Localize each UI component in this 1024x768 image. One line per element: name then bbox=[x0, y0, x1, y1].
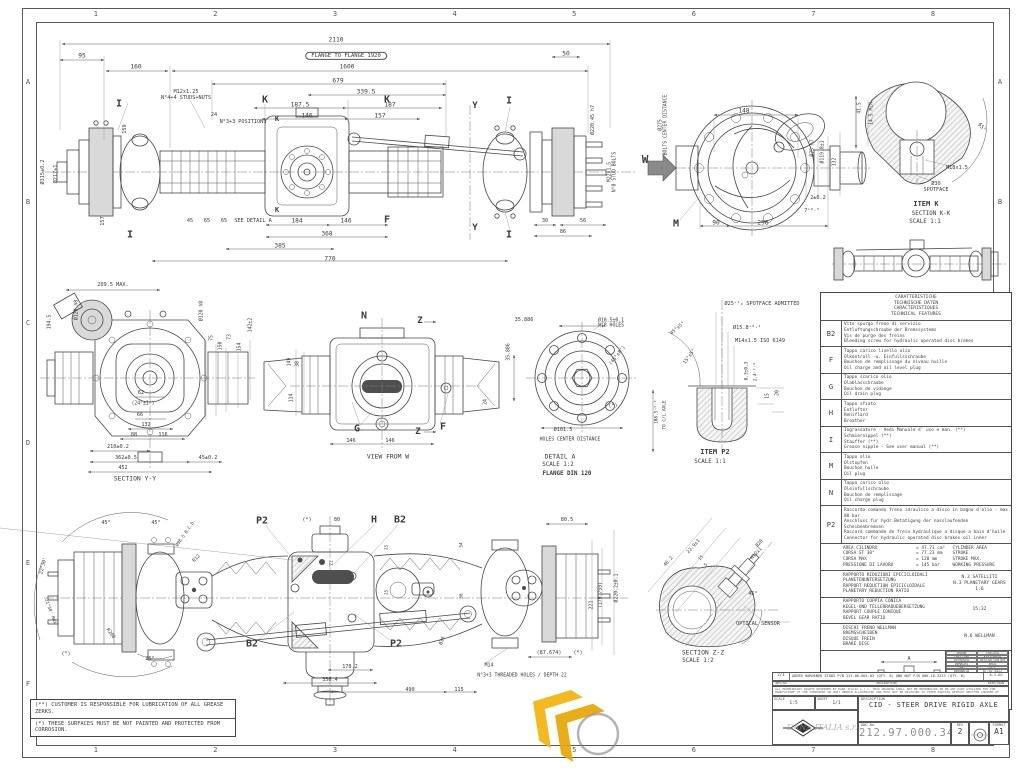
dim-label: I bbox=[116, 98, 122, 109]
dim-label: 15 bbox=[765, 393, 770, 399]
dim-label: Ø315±0.2 bbox=[41, 160, 47, 185]
feature-row-I: IIngrassatore - Vedi Manuale d' uso e ma… bbox=[821, 427, 1011, 454]
dim-label: 142±2 bbox=[248, 318, 253, 332]
dim-label: 45° bbox=[151, 521, 160, 527]
dim-label: 159 bbox=[123, 124, 129, 133]
dim-label: P2 bbox=[256, 515, 268, 526]
dim-label: 356.4 bbox=[322, 678, 338, 684]
dim-label: Y bbox=[472, 223, 477, 233]
dim-label: 30 bbox=[542, 219, 548, 225]
dim-label: 45±0.2 bbox=[199, 456, 218, 462]
dim-label: 160 bbox=[130, 65, 141, 72]
dim-label: Ø75 h7 bbox=[810, 139, 815, 156]
dim-label: 65 bbox=[221, 219, 227, 225]
dim-label: 56 bbox=[461, 593, 466, 598]
dim-label: M bbox=[673, 218, 679, 229]
dim-label: M14 bbox=[485, 663, 494, 668]
dim-label: Ø217±1 bbox=[54, 165, 60, 184]
dim-label: 50 bbox=[562, 52, 569, 59]
dim-label: HOLES CENTER DISTANCE bbox=[540, 437, 601, 442]
dim-label: 62 bbox=[138, 391, 144, 397]
dim-label: 146 bbox=[301, 114, 312, 121]
dim-label: 187.5 bbox=[291, 103, 310, 110]
rev-cell: REV 2 bbox=[951, 722, 969, 745]
dim-label: 157 bbox=[101, 216, 107, 225]
ratio-row: DISCHI FRENO WELLMANBREMSSCHEIBENDISQUE … bbox=[821, 624, 1011, 651]
dim-label: 14.5 MIN. bbox=[869, 99, 874, 125]
dim-label: 187 bbox=[384, 103, 395, 110]
revision-sign: A.1.AG bbox=[983, 673, 1008, 680]
ratio-row: RAPPORTO RIDUZIONI EPICICLOIDALIPLANETEN… bbox=[821, 571, 1011, 598]
drawing-title: CID - STEER DRIVE RIGID AXLE bbox=[859, 701, 1008, 709]
dim-label: ITEM P2 bbox=[700, 449, 730, 457]
dim-label: N°3+3 THREADED HOLES / DEPTH 22 bbox=[477, 673, 567, 678]
notes-box: (**) CUSTOMER IS RESPONSIBLE FOR LUBRICA… bbox=[30, 699, 236, 737]
dim-label: I bbox=[506, 229, 512, 240]
dim-label: N bbox=[361, 310, 367, 321]
view-item-p2 bbox=[653, 300, 784, 452]
dim-label: 770 bbox=[324, 257, 335, 264]
dim-label: SECTION K-K bbox=[912, 211, 950, 217]
dim-label: 26° bbox=[145, 657, 154, 663]
view-axle-side-small bbox=[832, 240, 1008, 280]
dim-label: M22x1.5 N°8 STUD BOLTS bbox=[608, 152, 619, 192]
dim-label: SCALE 1:2 bbox=[682, 658, 713, 664]
dim-label: 56 bbox=[580, 219, 586, 225]
sheet-cell: SHEET 1/1 bbox=[815, 696, 858, 710]
dim-label: Ø119.8±1 bbox=[820, 140, 825, 163]
dim-label: Ø220.45 h7 bbox=[591, 105, 597, 135]
dim-label: M14x1.5 ISO 6149 bbox=[735, 339, 785, 345]
feature-row-F: FTappo carico livello olioOlkontroll -u.… bbox=[821, 347, 1011, 374]
revision-row: 2/1 ADDED HARDENED STUDS P/N 223.06.001.… bbox=[772, 672, 1009, 681]
dim-label: 75 bbox=[209, 335, 214, 341]
dim-label: VIEW FROM W bbox=[367, 453, 409, 460]
dim-label: 157 bbox=[374, 114, 385, 121]
note-surfaces: (*) THESE SURFACES MUST BE NOT PAINTED A… bbox=[31, 719, 235, 737]
dim-label: M12x1.25 N°4+4 STUDS+NUTS bbox=[161, 90, 211, 102]
dim-label: 41.5 bbox=[857, 102, 862, 114]
dim-label: 146 bbox=[385, 439, 394, 445]
feature-row-H: HTappo sfiatoEntlufterReniflardBreather bbox=[821, 400, 1011, 427]
dim-label: W bbox=[642, 154, 649, 166]
dim-label: Ø120 h8 bbox=[199, 301, 204, 321]
dim-label: (87.674) bbox=[537, 651, 562, 657]
sheet-value: 1/1 bbox=[816, 701, 857, 707]
projection-symbol-icon bbox=[970, 723, 989, 745]
dim-label: G bbox=[354, 423, 360, 434]
technical-features-table: CARATTERISTICHETECHNISCHE DATENCARACTERI… bbox=[820, 292, 1012, 710]
dim-label: FLANGE DIN 120 bbox=[543, 471, 592, 477]
dim-label: M18x1.5 bbox=[946, 166, 968, 172]
description-cell: DESCRIPTION CID - STEER DRIVE RIGID AXLE bbox=[858, 696, 1009, 722]
people-grid: DRAWNCHECKEDCRESTINAKASTURKARAPPROVEDDES… bbox=[945, 650, 1009, 674]
dim-label: K bbox=[275, 116, 279, 124]
dim-label: SECTION Y-Y bbox=[114, 475, 156, 482]
dim-label: 88 bbox=[131, 433, 137, 439]
dim-label: 20 bbox=[775, 390, 780, 396]
sign-header: DATE/SIGN bbox=[984, 682, 1008, 685]
dim-label: H bbox=[371, 514, 377, 525]
dwg-number-cell: DWG No. 212.97.000.348 bbox=[858, 722, 951, 745]
dim-label: 116 bbox=[158, 433, 167, 439]
projection-cell bbox=[969, 722, 989, 745]
dim-label: 90 bbox=[712, 221, 719, 228]
dim-label: 184 bbox=[291, 219, 302, 226]
feature-row-G: GTappo scarico olioOlablasschraubeBoucho… bbox=[821, 374, 1011, 401]
logo-cell: DANA ITALIA s.r.l bbox=[772, 710, 858, 745]
dim-label: 132 bbox=[832, 158, 837, 167]
dim-label: 194.5 bbox=[47, 315, 52, 329]
dim-label: 80 bbox=[334, 518, 340, 524]
dim-label: K bbox=[262, 94, 268, 105]
dim-label: Z bbox=[417, 316, 422, 326]
dwg-number: 212.97.000.348 bbox=[859, 727, 950, 739]
dim-label: Ø275 BOLTS CENTER DISTANCE bbox=[659, 95, 670, 156]
dim-label: 210±0.2 bbox=[107, 445, 129, 451]
desc-header: DESCRIPTION bbox=[789, 682, 984, 685]
dim-label: Z bbox=[415, 427, 420, 437]
dim-label: 24 bbox=[483, 399, 488, 405]
dim-label: 296 bbox=[757, 221, 768, 228]
dim-label: Ø120 h8 bbox=[74, 300, 79, 320]
dim-label: 490 bbox=[405, 688, 414, 694]
dim-label: (179.759) bbox=[598, 582, 603, 608]
dim-label: 7⁺⁰·⁵ bbox=[804, 209, 820, 215]
dim-label: TO C/L AXLE bbox=[664, 400, 669, 429]
dim-label: 21 bbox=[331, 560, 336, 565]
format-value: A1 bbox=[990, 727, 1008, 737]
dim-label: 2±0.2 bbox=[810, 196, 826, 202]
dim-label: 95 bbox=[78, 54, 85, 61]
dim-label: 54 bbox=[461, 542, 466, 547]
feature-row-B2: B2Vite spurgo freno di servizioEntluftun… bbox=[821, 321, 1011, 348]
dim-label: 368 bbox=[321, 232, 332, 239]
dim-label: 65 bbox=[204, 219, 210, 225]
dim-label: 45° bbox=[748, 592, 757, 598]
dim-label: 24 bbox=[211, 113, 217, 119]
dim-label: FLANGE TO FLANGE 1920 bbox=[305, 52, 387, 60]
dim-label: 146 bbox=[340, 219, 351, 226]
dim-label: 45 bbox=[187, 219, 193, 225]
dim-label: 80.5 bbox=[561, 518, 574, 524]
scale-value: 1:5 bbox=[773, 701, 814, 707]
rev-value: 2 bbox=[952, 727, 968, 737]
dim-label: SCALE 1:1 bbox=[909, 219, 940, 225]
dim-label: 35.886 bbox=[515, 318, 534, 324]
note-lubrication: (**) CUSTOMER IS RESPONSIBLE FOR LUBRICA… bbox=[31, 700, 235, 719]
dim-label: 114 bbox=[289, 394, 294, 403]
dim-label: B2 bbox=[394, 514, 406, 525]
company-watermark: DANA ITALIA s.r.l bbox=[787, 723, 858, 732]
dim-label: 150 bbox=[218, 342, 223, 351]
dim-label: F bbox=[440, 421, 446, 432]
dim-label: Ø101.5 bbox=[554, 428, 573, 434]
dim-label: Ø220.2±0.1 bbox=[614, 574, 619, 603]
dim-label: 15 bbox=[385, 590, 391, 596]
rev-header: REV/SH bbox=[773, 682, 789, 685]
dim-label: OPTICAL SENSOR bbox=[736, 622, 780, 628]
dim-label: 35.886 bbox=[506, 343, 511, 360]
dim-label: 45° bbox=[101, 521, 110, 527]
dim-label: I bbox=[127, 229, 133, 240]
dim-label: Ø25⁺¹₀ SPOTFACE ADMITTED bbox=[725, 302, 800, 308]
dim-label: 209.5 MAX. bbox=[97, 283, 128, 289]
dim-label: F bbox=[384, 214, 390, 225]
engineering-drawing-sheet: 1122334455667788AABBCCDDEEFF bbox=[0, 0, 1024, 768]
view-hub-face bbox=[648, 100, 870, 236]
dim-label: 154 bbox=[237, 343, 242, 352]
dim-label: 15 bbox=[385, 545, 391, 551]
feature-row-N: NTappo carico olioOleinfullschraubeBouch… bbox=[821, 480, 1011, 507]
dim-label: B2 bbox=[246, 638, 258, 649]
view-detail-a bbox=[514, 322, 638, 434]
feature-row-M: MTappo olioOlstopfenBouchon huileOil plu… bbox=[821, 453, 1011, 480]
dim-label: (*) bbox=[608, 404, 617, 410]
dim-label: SCALE 1:2 bbox=[542, 462, 573, 468]
dim-label: K bbox=[275, 207, 279, 215]
dim-label: 339.5 bbox=[357, 90, 376, 97]
dim-label: ITEM K bbox=[913, 201, 938, 209]
dim-label: (24°±1°) bbox=[131, 401, 154, 406]
dim-label: Ø15.8⁺⁰·¹ bbox=[733, 326, 761, 332]
dim-label: 452 bbox=[118, 466, 127, 472]
dim-label: 73 bbox=[227, 334, 232, 340]
ratio-row: RAPPORTO COPPIA CONICAKEGEL-UND TELLERRA… bbox=[821, 598, 1011, 625]
dim-label: SCALE 1:1 bbox=[694, 459, 725, 465]
dim-label: 679 bbox=[332, 79, 343, 86]
dim-label: 66 bbox=[137, 413, 143, 419]
title-block: DRAWNCHECKEDCRESTINAKASTURKARAPPROVEDDES… bbox=[772, 650, 1009, 745]
dim-label: I bbox=[506, 95, 512, 106]
dim-label: SECTION Z-Z bbox=[682, 649, 724, 656]
cylinder-specs: AREA CILINDRO= 47.71 cm²CYLINDER AREACOR… bbox=[821, 544, 1011, 571]
dim-label: 86 bbox=[560, 230, 566, 236]
dim-label: 0.3±0.3 bbox=[746, 362, 751, 381]
dim-label: 149 bbox=[287, 358, 292, 367]
dim-label: 221 bbox=[589, 601, 594, 610]
dim-label: 132 bbox=[141, 423, 150, 429]
dim-label: 2110 bbox=[329, 38, 344, 45]
view-from-w bbox=[264, 318, 499, 448]
view-top-plan bbox=[45, 40, 635, 261]
dim-label: 178.2 bbox=[342, 665, 358, 671]
feature-row-P2: P2Raccordo comando freno idraulico a dis… bbox=[821, 506, 1011, 544]
dim-label: 146 bbox=[346, 439, 355, 445]
revision-number: 2/1 bbox=[773, 673, 790, 680]
dim-label: N°3+3 POSITIONS bbox=[220, 120, 267, 126]
format-cell: FORMAT A1 bbox=[989, 722, 1009, 745]
dim-label: 2.4⁺⁰·⁴ bbox=[755, 363, 760, 382]
dim-label: 108.5⁺⁰·³ bbox=[656, 400, 661, 424]
dim-label: SEE DETAIL A bbox=[234, 219, 271, 225]
scale-cell: SCALE 1:5 bbox=[772, 696, 815, 710]
dim-label: (*) bbox=[573, 651, 582, 657]
dim-label: Ø30 SPOTFACE bbox=[924, 182, 949, 194]
dim-label: 1600 bbox=[340, 65, 355, 72]
dim-label: P2 bbox=[390, 638, 402, 649]
revision-description: ADDED HARDENED STUDS P/N 223.06.001.03 (… bbox=[790, 673, 983, 680]
dim-label: 115 bbox=[454, 688, 463, 694]
dim-label: (*) bbox=[302, 518, 311, 524]
dim-label: DETAIL A bbox=[545, 453, 576, 460]
dim-label: Ø10.5±0.1 N°8 HOLES bbox=[598, 319, 624, 330]
view-section-yy bbox=[40, 290, 255, 472]
dim-label: 385 bbox=[274, 244, 285, 251]
dim-label: (*) bbox=[61, 652, 70, 658]
features-header: CARATTERISTICHETECHNISCHE DATENCARACTERI… bbox=[821, 293, 1011, 321]
dim-label: Y bbox=[472, 101, 477, 111]
dim-label: 148 bbox=[738, 109, 749, 116]
dim-label: 362±0.5 bbox=[115, 456, 137, 462]
proprietary-notice: ALL PROPRIETARY RIGHTS RESERVED BY DANA … bbox=[772, 686, 1009, 696]
dim-label: 38 bbox=[295, 361, 300, 367]
